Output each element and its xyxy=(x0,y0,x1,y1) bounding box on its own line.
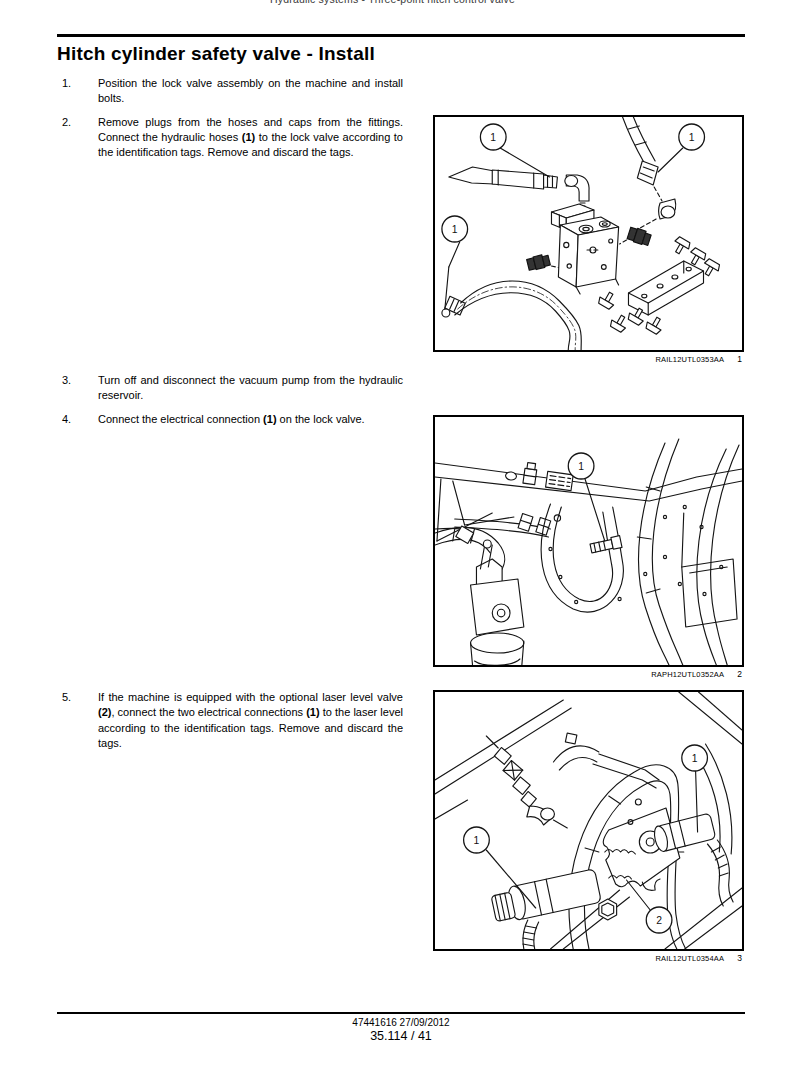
step-text: If the machine is equipped with the opti… xyxy=(98,690,403,751)
running-header-text: Hydraulic systems - Three-point hitch co… xyxy=(270,0,515,5)
figure-number: 2 xyxy=(737,669,742,679)
figure-number: 1 xyxy=(737,354,742,364)
step-number: 3. xyxy=(62,373,98,404)
step-number: 4. xyxy=(62,412,98,427)
callout-label: 2 xyxy=(656,915,662,926)
steps-group-1: 1.Position the lock valve assembly on th… xyxy=(62,76,403,168)
instruction-step: 4.Connect the electrical connection (1) … xyxy=(62,412,403,427)
figure-number: 3 xyxy=(737,953,742,963)
callout-1-balloon: 1 xyxy=(568,453,594,479)
instruction-step: 1.Position the lock valve assembly on th… xyxy=(62,76,403,107)
instruction-step: 5.If the machine is equipped with the op… xyxy=(62,690,403,751)
footer-page-number: 35.114 / 41 xyxy=(57,1029,745,1043)
figure-frame: 1 xyxy=(433,415,744,667)
figure-caption: RAIL12UTL0353AA 1 xyxy=(433,354,744,364)
callout-1-balloon: 1 xyxy=(682,745,708,771)
page-title: Hitch cylinder safety valve - Install xyxy=(57,43,745,65)
callout-label: 1 xyxy=(490,132,496,143)
figure-caption: RAIL12UTL0354AA 3 xyxy=(433,953,744,963)
laser-level-valve-illustration: 1 1 2 xyxy=(435,692,742,949)
callout-label: 1 xyxy=(689,132,695,143)
lock-valve-exploded-illustration: 1 1 1 xyxy=(435,117,742,350)
step-text: Connect the electrical connection (1) on… xyxy=(98,412,403,427)
callout-label: 1 xyxy=(692,753,698,764)
footer-doc-number: 47441616 27/09/2012 xyxy=(57,1017,745,1028)
step-text: Turn off and disconnect the vacuum pump … xyxy=(98,373,403,404)
figure-photo-code: RAIL12UTL0354AA xyxy=(655,954,724,963)
running-header: Hydraulic systems - Three-point hitch co… xyxy=(0,0,785,5)
callout-1-balloon: 1 xyxy=(442,216,468,242)
figure-caption: RAPH12UTL0352AA 2 xyxy=(433,669,744,679)
callout-label: 1 xyxy=(578,461,584,472)
step-text: Remove plugs from the hoses and caps fro… xyxy=(98,115,403,161)
page-footer: 47441616 27/09/2012 35.114 / 41 xyxy=(57,1012,745,1043)
callout-1-balloon: 1 xyxy=(480,124,506,150)
figure-laser-level-valve: 1 1 2 RAIL12UTL0354AA 3 xyxy=(433,690,744,963)
figure-lock-valve-assembly: 1 1 1 RAIL12UTL0353AA 1 xyxy=(433,115,744,364)
step-number: 1. xyxy=(62,76,98,107)
figure-frame: 1 1 1 xyxy=(433,115,744,352)
steps-group-2: 3.Turn off and disconnect the vacuum pum… xyxy=(62,373,403,435)
step-text: Position the lock valve assembly on the … xyxy=(98,76,403,107)
instruction-step: 2.Remove plugs from the hoses and caps f… xyxy=(62,115,403,161)
callout-label: 1 xyxy=(474,835,480,846)
title-block: Hitch cylinder safety valve - Install xyxy=(57,34,745,65)
instruction-step: 3.Turn off and disconnect the vacuum pum… xyxy=(62,373,403,404)
step-number: 5. xyxy=(62,690,98,751)
manual-page: Hydraulic systems - Three-point hitch co… xyxy=(0,0,785,1069)
steps-group-3: 5.If the machine is equipped with the op… xyxy=(62,690,403,759)
figure-frame: 1 1 2 xyxy=(433,690,744,951)
callout-1-balloon: 1 xyxy=(679,124,705,150)
callout-1-balloon: 1 xyxy=(464,827,490,853)
step-number: 2. xyxy=(62,115,98,161)
callout-2-balloon: 2 xyxy=(646,907,672,933)
figure-photo-code: RAPH12UTL0352AA xyxy=(651,670,724,679)
figure-photo-code: RAIL12UTL0353AA xyxy=(655,355,724,364)
figure-electrical-connection: 1 RAPH12UTL0352AA 2 xyxy=(433,415,744,679)
callout-label: 1 xyxy=(452,224,458,235)
lock-valve-machine-illustration: 1 xyxy=(435,417,742,665)
